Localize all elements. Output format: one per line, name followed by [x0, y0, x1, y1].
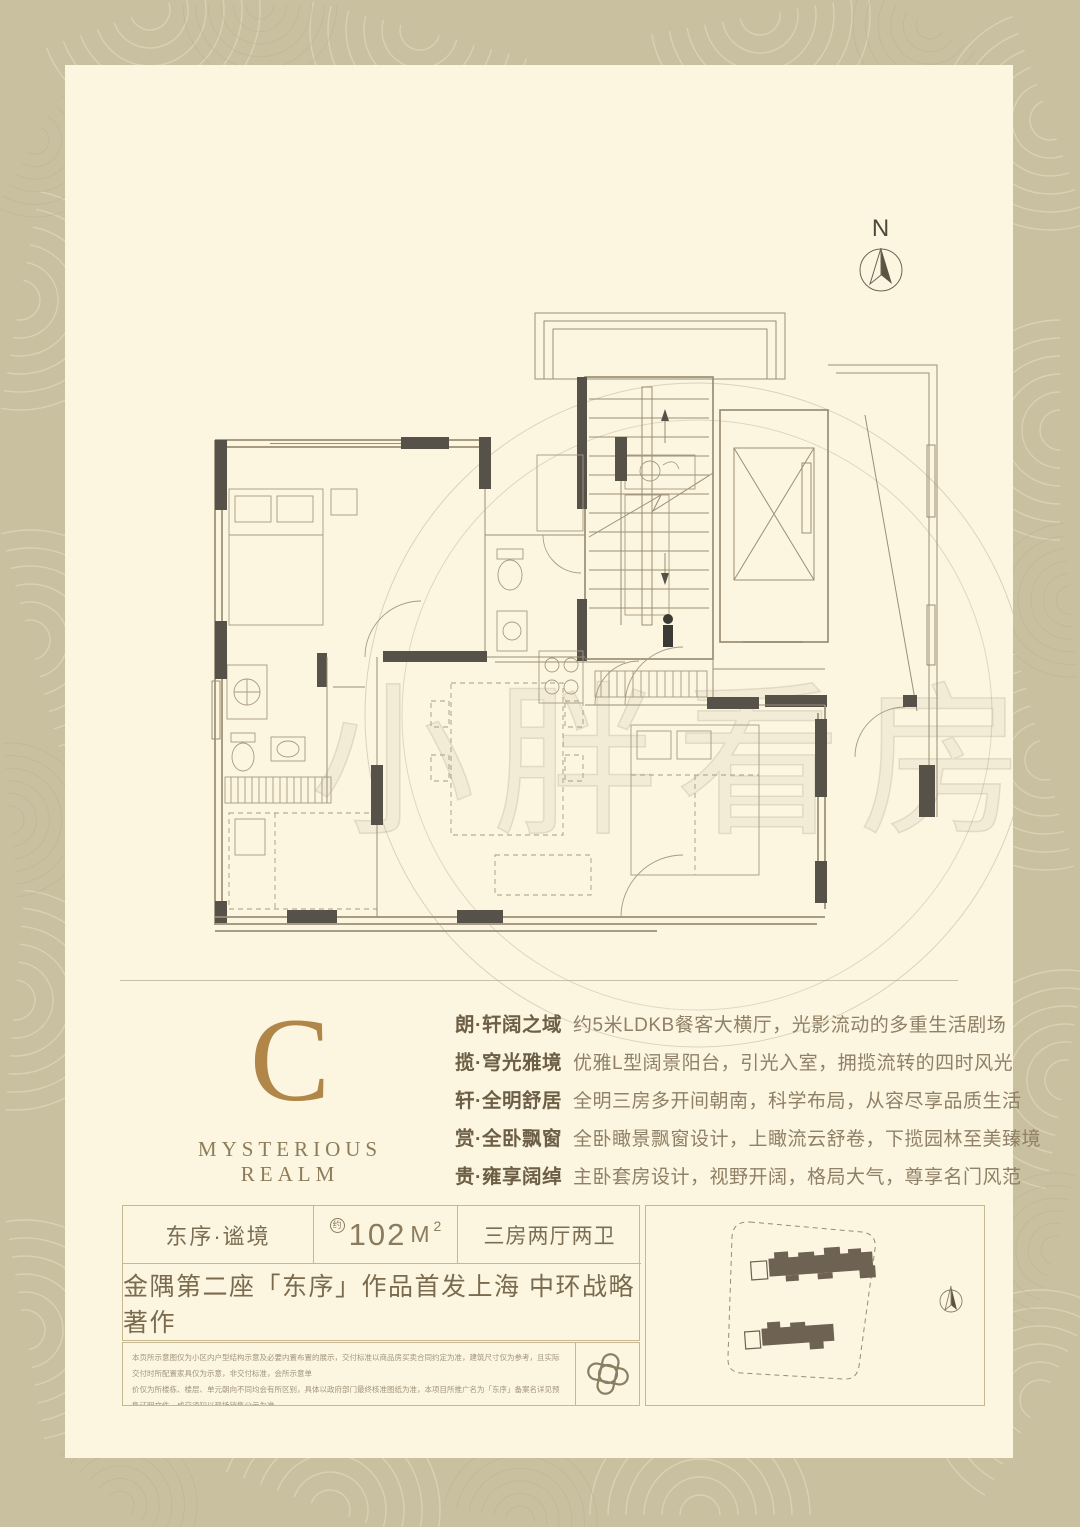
unit-name: 东序·谧境	[165, 1219, 270, 1251]
feature-title: 赏·全卧飘窗	[455, 1127, 573, 1152]
dining-table	[431, 683, 583, 835]
bedroom-north	[215, 437, 491, 663]
elevator	[720, 410, 828, 642]
north-compass: N	[849, 215, 913, 305]
feature-row: 轩·全明舒居 全明三房多开间朝南，科学布局，从容尽享品质生活	[455, 1089, 965, 1114]
kitchen	[537, 437, 695, 703]
feature-title: 朗·轩阔之域	[455, 1013, 573, 1038]
bed	[631, 725, 759, 875]
type-block: C MYSTERIOUS REALM	[150, 995, 430, 1187]
knot-emblem-icon	[584, 1350, 632, 1398]
wardrobe-hatch	[595, 671, 707, 697]
area-unit: M	[410, 1221, 429, 1248]
stove-icon	[539, 651, 583, 703]
bedroom-southwest	[215, 657, 657, 931]
feature-row: 朗·轩阔之域 约5米LDKB餐客大横厅，光影流动的多重生活剧场	[455, 1013, 965, 1038]
building-footprint	[744, 1318, 835, 1354]
watermark-text: 小胖看房	[310, 671, 1013, 855]
disclaimer-text: 本页所示意图仅为小区内户型结构示意及必要内置布置的展示，交付标准以商品房买卖合同…	[123, 1343, 575, 1405]
site-compass-icon	[940, 1286, 962, 1312]
washbasin-icon	[271, 737, 305, 761]
toilet-icon	[497, 549, 523, 590]
poster-card: N .ln{fill:none;stroke:#9b8e74;stroke-wi…	[65, 65, 1013, 1458]
feature-title: 轩·全明舒居	[455, 1089, 573, 1114]
north-compass-icon	[849, 243, 913, 301]
bathtub-icon	[227, 665, 267, 719]
building-footprint	[750, 1244, 876, 1286]
feature-list: 朗·轩阔之域 约5米LDKB餐客大横厅，光影流动的多重生活剧场 揽·穹光雅境 优…	[455, 1013, 965, 1203]
area-number: 102	[349, 1217, 407, 1253]
brand-emblem-cell	[575, 1343, 639, 1405]
feature-desc: 全卧瞰景飘窗设计，上瞰流云舒卷，下揽园林至美臻境	[573, 1127, 1041, 1152]
site-plan	[646, 1206, 984, 1405]
type-letter: C	[150, 995, 430, 1125]
stair-elevator-core	[535, 313, 828, 707]
feature-desc: 主卧套房设计，视野开阔，格局大气，尊享名门风范	[573, 1165, 1022, 1190]
bed	[229, 813, 377, 909]
disclaimer-line: 本页所示意图仅为小区内户型结构示意及必要内置布置的展示，交付标准以商品房买卖合同…	[132, 1350, 566, 1382]
washbasin-icon	[497, 611, 527, 651]
sink-icon	[625, 455, 695, 489]
north-label: N	[849, 215, 913, 243]
unit-layout-cell: 三房两厅两卫	[458, 1206, 641, 1264]
feature-title: 揽·穹光雅境	[455, 1051, 573, 1076]
bathroom-left	[212, 653, 331, 925]
bed	[229, 489, 323, 625]
toilet-icon	[231, 733, 255, 771]
unit-layout: 三房两厅两卫	[484, 1220, 616, 1250]
area-superscript: 2	[434, 1218, 442, 1234]
feature-row: 赏·全卧飘窗 全卧瞰景飘窗设计，上瞰流云舒卷，下揽园林至美臻境	[455, 1127, 965, 1152]
unit-area-cell: 约102M2	[314, 1206, 458, 1264]
feature-row: 贵·雍享阔绰 主卧套房设计，视野开阔，格局大气，尊享名门风范	[455, 1165, 965, 1190]
bathroom-middle	[485, 535, 585, 651]
type-subtitle: MYSTERIOUS REALM	[150, 1137, 430, 1187]
unit-name-cell: 东序·谧境	[123, 1206, 314, 1264]
poster-page: { "poster": { "compass_label": "N", "wat…	[0, 0, 1080, 1527]
floor-plan: .ln{fill:none;stroke:#9b8e74;stroke-widt…	[65, 195, 1013, 1095]
neighbor-unit	[828, 365, 937, 817]
feature-desc: 约5米LDKB餐客大横厅，光影流动的多重生活剧场	[573, 1013, 1006, 1038]
disclaimer-line: 价仅为所楼栋、楼层、单元朝向不同均会有所区别，具体以政府部门最终核准图纸为准，本…	[132, 1382, 566, 1405]
unit-info-table: 东序·谧境 约102M2 三房两厅两卫 金隅第二座「东序」作品首发上海 中环战略…	[122, 1205, 640, 1341]
feature-desc: 优雅L型阔景阳台，引光入室，拥揽流转的四时风光	[573, 1051, 1013, 1076]
watermark: 小胖看房	[310, 383, 1013, 1047]
master-bedroom	[595, 614, 917, 924]
disclaimer-box: 本页所示意图仅为小区内户型结构示意及必要内置布置的展示，交付标准以商品房买卖合同…	[122, 1342, 640, 1406]
stair-treads	[589, 387, 713, 625]
section-divider	[120, 980, 958, 981]
site-plan-panel	[645, 1205, 985, 1406]
tagline-cell: 金隅第二座「东序」作品首发上海 中环战略著作	[123, 1264, 641, 1341]
feature-row: 揽·穹光雅境 优雅L型阔景阳台，引光入室，拥揽流转的四时风光	[455, 1051, 965, 1076]
wardrobe-hatch	[225, 777, 331, 803]
living-dining	[431, 683, 683, 917]
approx-symbol: 约	[330, 1218, 345, 1233]
feature-desc: 全明三房多开间朝南，科学布局，从容尽享品质生活	[573, 1089, 1022, 1114]
feature-title: 贵·雍享阔绰	[455, 1165, 573, 1190]
tagline: 金隅第二座「东序」作品首发上海 中环战略著作	[123, 1267, 641, 1339]
